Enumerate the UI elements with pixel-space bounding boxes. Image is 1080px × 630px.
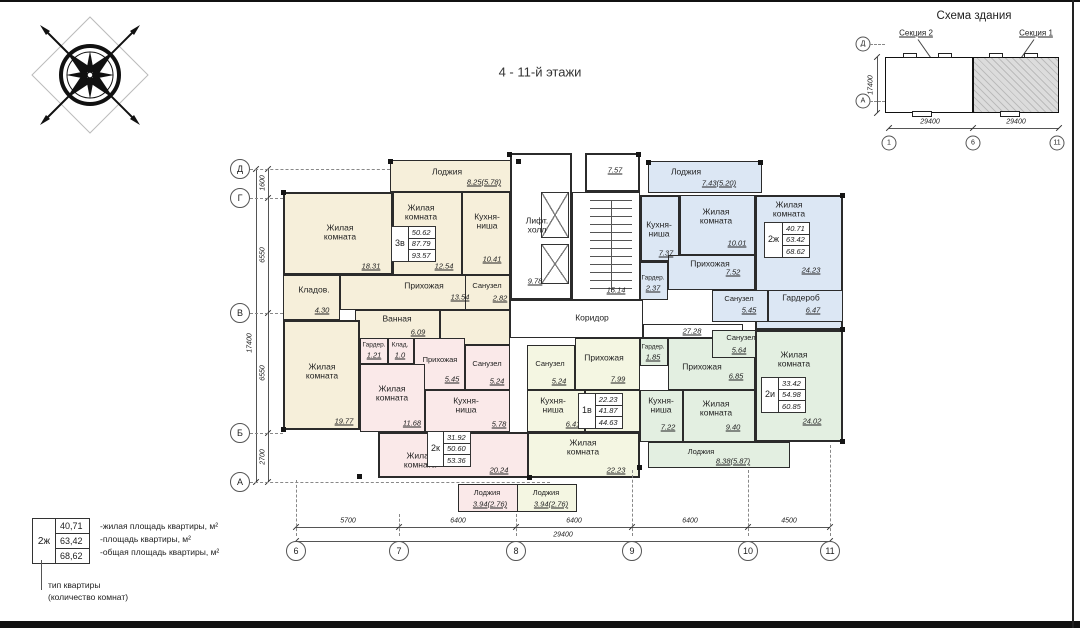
legend-caption-type: тип квартиры [48,580,101,590]
room-area: 2.37 [646,284,661,293]
schema-section2-label: Секция 2 [899,29,933,38]
schema-axis-1: 1 [882,136,897,151]
axis-dash [870,101,885,102]
room-label: Кладов. [298,285,329,294]
stat-area: 50.60 [444,444,470,456]
wall-pier [507,152,512,157]
dim-bottom-2: 6400 [566,518,582,525]
room-label: Лоджия [533,489,560,497]
wall-pier [281,427,286,432]
wall-pier [281,190,286,195]
room-area: 1.85 [646,353,661,362]
room-area: 6.47 [806,306,821,315]
room-label: Жилая комната [700,400,732,419]
room-label: Прихожая [404,281,443,290]
room-label: Гардер. [641,274,664,281]
room-area: 6.09 [411,328,426,337]
apartment-stats-2k: 2к 31.92 50.60 53.36 [427,431,471,467]
plan-title: 4 - 11-й этажи [499,65,582,80]
floorplan-sheet: { "page": { "title": "4 - 11-й этажи" },… [0,0,1080,630]
stat-total-area: 68.62 [783,246,809,257]
room-label: Ванная [382,314,411,323]
room-area: 22.23 [607,466,626,475]
stairs-area: 15.14 [607,286,626,295]
stat-area: 54.98 [779,390,805,402]
room-label: Жилая комната [778,351,810,370]
room-label: Жилая комната [700,208,732,227]
room-label: Клад. [392,341,409,348]
apartment-stats-1v: 1в 22.23 41.87 44.63 [578,393,623,429]
wall-pier [840,327,845,332]
legend-apartment-type: 2ж [33,519,56,563]
schema-section2-outline [885,57,973,113]
stat-living-area: 33.42 [779,378,805,390]
room-area: 7.99 [611,375,626,384]
corridor-label: Коридор [575,313,609,322]
room-label: Лоджия [671,167,701,176]
room-label: Санузел [472,360,501,368]
room-area: 7.37 [659,249,674,258]
apartment-type: 1в [579,394,596,428]
schema-dim-left: 29400 [920,119,939,126]
axis-dash [250,433,283,434]
room-area: 8.25(5.78) [467,178,501,187]
room-label: Прихожая [690,259,729,268]
room-area: 5.45 [742,306,757,315]
schema-notch [938,53,952,58]
room-label: Кухня- ниша [646,221,672,240]
schema-notch [989,53,1003,58]
apartment-type: 2ж [765,223,783,257]
room-label: Санузел [726,334,755,342]
legend-caption-rooms: (количество комнат) [48,592,128,602]
room-label: Жилая комната [376,385,408,404]
legend-desc-living: -жилая площадь квартиры, м² [100,521,218,531]
compass-rose-icon [26,11,154,139]
apartment-type: 2и [762,378,779,412]
wall-pier [388,159,393,164]
room-area: 5.24 [490,377,505,386]
stat-total-area: 93.57 [409,250,435,261]
room-area: 24.02 [803,417,822,426]
apartment-stats-3v: 3в 50.62 87.79 93.57 [391,226,436,262]
axis-col-11: 11 [820,541,840,561]
room-label: Санузел [724,295,753,303]
schema-notch [1024,53,1038,58]
wall-pier [527,475,532,480]
wall-pier [357,474,362,479]
schema-axis-11: 11 [1050,136,1065,151]
wall-pier [516,159,521,164]
room-area: 4.30 [315,306,330,315]
schema-dim-right: 29400 [1006,119,1025,126]
stat-total-area: 60.85 [779,401,805,412]
dim-left-2: 6550 [260,365,267,381]
axis-col-8: 8 [506,541,526,561]
room-area: 1.0 [395,351,405,360]
room-area: 11.68 [403,419,421,428]
stat-living-area: 22.23 [596,394,622,406]
room-label: Жилая комната [405,204,437,223]
dim-line-bottom [296,527,830,528]
stat-living-area: 31.92 [444,432,470,444]
axis-dash [748,470,749,536]
wall-pier [758,160,763,165]
room-3v-storage [283,275,340,320]
dim-line-left [268,169,269,482]
room-1v-hall [575,338,640,390]
legend-stat-box: 2ж 40,71 63,42 68,62 [32,518,90,564]
dim-left-0: 1600 [260,175,267,191]
axis-dash [830,445,831,536]
room-label: Лоджия [432,167,462,176]
legend-value-area: 63,42 [56,534,89,549]
room-area: 10.41 [483,255,502,264]
room-label: Жилая комната [567,439,599,458]
axis-row-g: Г [230,188,250,208]
legend-value-total: 68,62 [56,549,89,563]
sheet-border-bottom [0,621,1080,628]
stat-area: 87.79 [409,239,435,251]
room-area: 7.22 [661,423,676,432]
room-label: Санузел [472,282,501,290]
room-area: 24.23 [802,266,821,275]
room-area: 18.31 [362,262,381,271]
dim-bottom-4: 4500 [781,518,797,525]
stat-living-area: 50.62 [409,227,435,239]
room-label: Кухня- ниша [540,397,566,416]
room-area: 1.21 [367,351,382,360]
dim-left-total: 17400 [247,333,254,352]
wall-pier [646,160,651,165]
stat-total-area: 44.63 [596,417,622,428]
room-label: Прихожая [423,356,458,364]
room-area: 12.54 [435,262,454,271]
room-area: 5.64 [732,346,747,355]
room-label: Кухня- ниша [648,397,674,416]
schema-dim-height: 17400 [868,75,875,94]
vestibule-area: 7.57 [608,166,623,175]
legend-desc-total: -общая площадь квартиры, м² [100,547,219,557]
axis-dash [399,514,400,536]
wall-pier [840,193,845,198]
axis-col-6: 6 [286,541,306,561]
dim-tick [874,110,880,116]
room-label: Жилая комната [324,224,356,243]
lift-hall-label: Лифт. холл [526,217,548,236]
room-area: 5.78 [492,420,507,429]
dim-left-1: 6550 [260,247,267,263]
schema-notch [903,53,917,58]
axis-dash [296,480,297,536]
room-label: Кухня- ниша [474,213,500,232]
corridor-dim: 27.28 [683,327,702,336]
dim-line-left-total [256,169,257,482]
schema-section1-label: Секция 1 [1019,29,1053,38]
sheet-border-top [0,0,1080,2]
room-2zh-loggia [648,161,762,193]
axis-col-10: 10 [738,541,758,561]
axis-dash [870,44,885,45]
lift-hall-area: 9.78 [528,277,543,286]
room-area: 2.82 [493,294,508,303]
stairs-divider [611,200,612,292]
legend-desc-area: -площадь квартиры, м² [100,534,191,544]
schema-dim-line-bottom [889,128,1059,129]
room-label: Лоджия [474,489,501,497]
room-area: 20.24 [490,466,509,475]
room-area: 6.85 [729,372,744,381]
axis-col-9: 9 [622,541,642,561]
wall-pier [637,465,642,470]
room-area: 9.40 [726,423,741,432]
stat-living-area: 40.71 [783,223,809,235]
dim-bottom-3: 6400 [682,518,698,525]
axis-dash [632,470,633,536]
stat-area: 63.42 [783,235,809,247]
dim-bottom-total: 29400 [553,532,572,539]
axis-dash [516,514,517,536]
stat-total-area: 53.36 [444,455,470,466]
axis-dash [250,169,390,170]
apartment-stats-2zh: 2ж 40.71 63.42 68.62 [764,222,810,258]
schema-notch [912,111,932,117]
dim-bottom-0: 5700 [340,518,356,525]
room-label: Гардер. [362,341,385,348]
room-area: 7.43(5.20) [702,179,736,188]
room-label: Гардер. [641,343,664,350]
sheet-border-right [1072,0,1074,628]
lift-shaft-2 [541,244,569,284]
apartment-stats-2i: 2и 33.42 54.98 60.85 [761,377,806,413]
axis-dash [250,313,283,314]
wall-pier [840,439,845,444]
room-area: 19.77 [335,417,354,426]
wall-pier [636,152,641,157]
room-area: 5.45 [445,375,460,384]
room-area: 13.54 [451,293,470,302]
schema-section1-outline [973,57,1059,113]
room-area: 5.24 [552,377,567,386]
room-label: Кухня- ниша [453,397,479,416]
room-area: 3.94(2.76) [473,500,507,509]
room-label: Прихожая [584,353,623,362]
axis-dash [250,482,550,483]
room-label: Лоджия [688,448,715,456]
room-area: 10.01 [728,239,747,248]
axis-row-d: Д [230,159,250,179]
axis-col-7: 7 [389,541,409,561]
room-label: Прихожая [682,362,721,371]
dim-left-3: 2700 [260,449,267,465]
dim-tick [1056,125,1062,131]
schema-dim-line-left [877,57,878,113]
schema-axis-6: 6 [966,136,981,151]
axis-row-a: А [230,472,250,492]
room-label: Жилая комната [773,201,805,220]
schema-axis-d: Д [856,37,871,52]
room-area: 8.38(5.87) [716,457,750,466]
apartment-type: 2к [428,432,444,466]
room-label: Жилая комната [306,363,338,382]
legend-value-living: 40,71 [56,519,89,534]
room-area: 3.94(2.76) [534,500,568,509]
stat-area: 41.87 [596,406,622,418]
axis-dash [250,198,283,199]
axis-row-v: В [230,303,250,323]
dim-bottom-1: 6400 [450,518,466,525]
schema-notch [1000,111,1020,117]
schema-axis-a: А [856,94,871,109]
schema-title: Схема здания [937,10,1012,22]
legend-leader [41,560,42,590]
apartment-type: 3в [392,227,409,261]
room-label: Санузел [535,360,564,368]
axis-row-b: Б [230,423,250,443]
room-label: Гардероб [782,293,819,302]
room-area: 7.52 [726,268,741,277]
